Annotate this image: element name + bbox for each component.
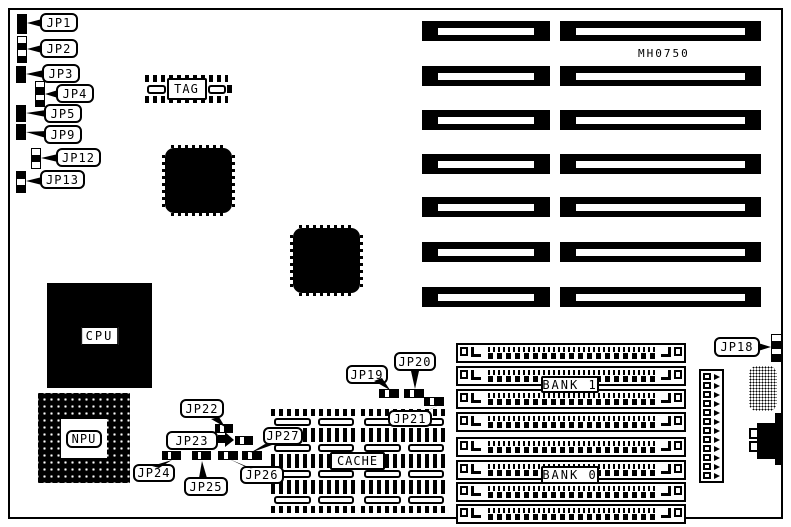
- socket-slot: [364, 444, 401, 452]
- socket-slots: [364, 495, 444, 505]
- socket-slot: [274, 496, 311, 504]
- jumper-jp25: [192, 451, 211, 460]
- npu-socket: NPU: [38, 393, 130, 483]
- pin-mark: [714, 455, 720, 461]
- simm-clip: [471, 441, 481, 451]
- chip-pins: [162, 154, 165, 207]
- socket-slot: [274, 418, 311, 426]
- simm-clip: [471, 416, 481, 426]
- simm-contacts: [488, 441, 657, 453]
- simm-clip: [471, 393, 481, 403]
- slot-opening: [576, 73, 745, 80]
- socket-slots: [364, 469, 444, 479]
- jumper-jp18: [771, 334, 782, 362]
- socket-slot: [318, 496, 355, 504]
- jumper-label-jp2: JP2: [40, 39, 78, 58]
- jumper-jp27: [242, 451, 262, 460]
- slot-opening: [438, 117, 534, 124]
- simm-clip: [674, 508, 682, 517]
- pin-hole: [703, 373, 711, 380]
- simm-clip: [674, 464, 682, 473]
- simm-clip: [661, 486, 671, 496]
- npu-socket-center: NPU: [61, 419, 107, 458]
- expansion-slot-16bit: [560, 197, 761, 217]
- jumper-label-jp23: JP23: [166, 431, 218, 450]
- jumper-jp3: [16, 66, 26, 83]
- pin-mark: [714, 473, 720, 479]
- slot-opening: [438, 28, 534, 35]
- chip-pins: [232, 154, 235, 207]
- cache-label: CACHE: [330, 452, 385, 470]
- pin-mark: [714, 392, 720, 398]
- jumper-label-jp13: JP13: [40, 170, 85, 189]
- jumper-jp9: [16, 124, 26, 140]
- socket-pin-row: [361, 428, 447, 435]
- expansion-slot-8bit: [422, 154, 550, 174]
- cache-chip: [361, 487, 447, 513]
- jumper-jp23: [235, 436, 253, 445]
- simm-clip: [674, 486, 682, 495]
- expansion-slot-8bit: [422, 197, 550, 217]
- jumper-jp2: [17, 36, 27, 63]
- socket-pin-row: [271, 487, 357, 494]
- jumper-label-jp9: JP9: [44, 125, 82, 144]
- npu-label: NPU: [66, 430, 103, 448]
- chip-pins: [360, 234, 363, 287]
- jumper-jp19: [379, 389, 399, 398]
- simm-clip: [661, 370, 671, 380]
- pin-hole: [703, 400, 711, 407]
- pin-mark: [714, 464, 720, 470]
- tag-ram-socket: TAG: [145, 75, 228, 103]
- pin-hole: [703, 463, 711, 470]
- simm-clip: [674, 393, 682, 402]
- jumper-jp20: [404, 389, 424, 398]
- simm-clip: [471, 508, 481, 518]
- connector-pad: [749, 366, 777, 411]
- contact-row: [488, 514, 657, 520]
- contact-row: [488, 441, 657, 446]
- expansion-slot-16bit: [560, 66, 761, 86]
- slot-opening: [438, 161, 534, 168]
- jumper-jp1: [17, 14, 27, 34]
- contact-row: [488, 370, 657, 375]
- power-pin: [703, 382, 720, 390]
- expansion-slot-8bit: [422, 66, 550, 86]
- expansion-slot-8bit: [422, 21, 550, 41]
- jumper-jp24: [162, 451, 181, 460]
- socket-pin-row: [361, 480, 447, 487]
- jumper-label-jp4: JP4: [56, 84, 94, 103]
- socket-pin-row: [361, 435, 447, 442]
- simm-clip: [661, 508, 671, 518]
- power-pin: [703, 445, 720, 453]
- pin-hole: [703, 391, 711, 398]
- jumper-label-jp18: JP18: [714, 337, 760, 357]
- expansion-slot-16bit: [560, 242, 761, 262]
- socket-slot: [274, 444, 311, 452]
- simm-clip: [674, 347, 682, 356]
- simm-clip: [674, 416, 682, 425]
- simm-clip: [460, 416, 468, 425]
- contact-row: [488, 447, 657, 453]
- simm-contacts: [488, 486, 657, 498]
- pin-hole: [703, 418, 711, 425]
- bank1-label: BANK 1: [541, 376, 599, 393]
- pin-hole: [703, 427, 711, 434]
- cpu-chip: CPU: [47, 283, 152, 388]
- socket-slot: [364, 470, 401, 478]
- socket-pin-row: [271, 480, 357, 487]
- expansion-slot-16bit: [560, 21, 761, 41]
- simm-contacts: [488, 508, 657, 520]
- expansion-slot-16bit: [560, 154, 761, 174]
- qfp-chip-2: [293, 228, 360, 293]
- connector-plug: [749, 428, 759, 439]
- slot-opening: [576, 117, 745, 124]
- expansion-slot-16bit: [560, 110, 761, 130]
- socket-pin-row: [271, 409, 357, 416]
- simm-clip: [674, 441, 682, 450]
- jumper-label-jp12: JP12: [56, 148, 101, 167]
- pin-hole: [703, 436, 711, 443]
- simm-clip: [460, 393, 468, 402]
- simm-clip: [471, 370, 481, 380]
- jumper-jp22: [215, 424, 233, 433]
- simm-clip: [471, 486, 481, 496]
- simm-socket: [456, 343, 686, 363]
- qfp-chip-1: [165, 148, 232, 213]
- simm-clip: [460, 486, 468, 495]
- chip-pins: [290, 234, 293, 287]
- jumper-jp4: [35, 81, 45, 107]
- simm-clip: [460, 441, 468, 450]
- power-pin: [703, 436, 720, 444]
- pin-mark: [714, 428, 720, 434]
- simm-clip: [460, 464, 468, 473]
- jumper-label-jp5: JP5: [44, 104, 82, 123]
- pin-hole: [703, 382, 711, 389]
- socket-slot: [364, 496, 401, 504]
- simm-clip: [661, 393, 671, 403]
- simm-clip: [471, 464, 481, 474]
- simm-contacts: [488, 393, 657, 405]
- power-pin: [703, 409, 720, 417]
- contact-row: [488, 347, 657, 352]
- simm-socket: [456, 412, 686, 432]
- jumper-label-jp3: JP3: [42, 64, 80, 83]
- simm-clip: [460, 347, 468, 356]
- contact-row: [488, 399, 657, 405]
- pin-mark: [714, 437, 720, 443]
- simm-socket: [456, 482, 686, 502]
- simm-clip: [661, 441, 671, 451]
- socket-pin-row: [361, 506, 447, 513]
- socket-slot: [318, 418, 355, 426]
- contact-row: [488, 353, 657, 359]
- slot-opening: [576, 294, 745, 301]
- socket-notch: [227, 85, 232, 93]
- slot-opening: [576, 28, 745, 35]
- contact-row: [488, 486, 657, 491]
- simm-clip: [674, 370, 682, 379]
- slot-opening: [438, 204, 534, 211]
- jumper-label-jp26: JP26: [240, 466, 284, 484]
- socket-slots: [274, 417, 354, 427]
- cpu-label: CPU: [81, 327, 119, 345]
- expansion-slot-16bit: [560, 287, 761, 307]
- slot-opening: [438, 73, 534, 80]
- jumper-label-jp22: JP22: [180, 399, 224, 418]
- simm-clip: [661, 464, 671, 474]
- socket-pin-row: [271, 506, 357, 513]
- pin-hole: [703, 445, 711, 452]
- jumper-jp13: [16, 171, 26, 193]
- simm-clip: [661, 416, 671, 426]
- power-pin: [703, 463, 720, 471]
- power-pin: [703, 373, 720, 381]
- motherboard-diagram: MH0750 TAG CPU NPU BANK 1 BANK 0 CACHE: [0, 0, 791, 527]
- simm-clip: [471, 347, 481, 357]
- socket-slots: [274, 495, 354, 505]
- contact-row: [488, 422, 657, 428]
- socket-slot: [408, 496, 445, 504]
- jumper-label-jp21: JP21: [388, 410, 432, 427]
- pin-mark: [714, 419, 720, 425]
- jumper-label-jp24: JP24: [133, 464, 175, 482]
- jumper-label-jp25: JP25: [184, 477, 228, 496]
- power-connector: [699, 369, 724, 483]
- pin-mark: [714, 374, 720, 380]
- socket-slot: [408, 470, 445, 478]
- expansion-slot-8bit: [422, 287, 550, 307]
- socket-slot: [318, 470, 355, 478]
- simm-socket: [456, 437, 686, 457]
- simm-contacts: [488, 416, 657, 428]
- simm-clip: [661, 347, 671, 357]
- pin-mark: [714, 410, 720, 416]
- jumper-jp26: [218, 451, 238, 460]
- socket-slot: [318, 444, 355, 452]
- jumper-label-jp20: JP20: [394, 352, 436, 371]
- tag-label: TAG: [167, 78, 207, 100]
- cache-chip: [271, 487, 357, 513]
- pin-mark: [714, 383, 720, 389]
- power-pin: [703, 427, 720, 435]
- pin-hole: [703, 454, 711, 461]
- simm-clip: [460, 370, 468, 379]
- pin-mark: [714, 446, 720, 452]
- power-pin: [703, 391, 720, 399]
- jumper-label-jp27: JP27: [263, 427, 303, 445]
- contact-row: [488, 508, 657, 513]
- contact-row: [488, 393, 657, 398]
- pin-hole: [703, 409, 711, 416]
- jumper-jp5: [16, 105, 26, 122]
- jumper-label-jp19: JP19: [346, 365, 388, 384]
- power-pin: [703, 472, 720, 480]
- power-pin: [703, 400, 720, 408]
- socket-pin-row: [361, 487, 447, 494]
- jumper-jp21: [424, 397, 444, 406]
- slot-opening: [576, 249, 745, 256]
- bank0-label: BANK 0: [541, 466, 599, 484]
- slot-opening: [576, 204, 745, 211]
- pin-hole: [703, 472, 711, 479]
- connector-plug: [749, 441, 759, 452]
- simm-socket: [456, 504, 686, 524]
- model-number: MH0750: [638, 47, 690, 60]
- expansion-slot-8bit: [422, 110, 550, 130]
- pin-mark: [714, 401, 720, 407]
- slot-opening: [438, 249, 534, 256]
- slot-opening: [438, 294, 534, 301]
- contact-row: [488, 416, 657, 421]
- expansion-slot-8bit: [422, 242, 550, 262]
- socket-slot: [408, 444, 445, 452]
- socket-slots: [274, 469, 354, 479]
- slot-opening: [576, 161, 745, 168]
- jumper-jp12: [31, 148, 41, 169]
- simm-clip: [460, 508, 468, 517]
- power-pin: [703, 454, 720, 462]
- power-pin: [703, 418, 720, 426]
- simm-contacts: [488, 347, 657, 359]
- jumper-label-jp1: JP1: [40, 13, 78, 32]
- contact-row: [488, 492, 657, 498]
- keyboard-connector-body: [757, 423, 783, 459]
